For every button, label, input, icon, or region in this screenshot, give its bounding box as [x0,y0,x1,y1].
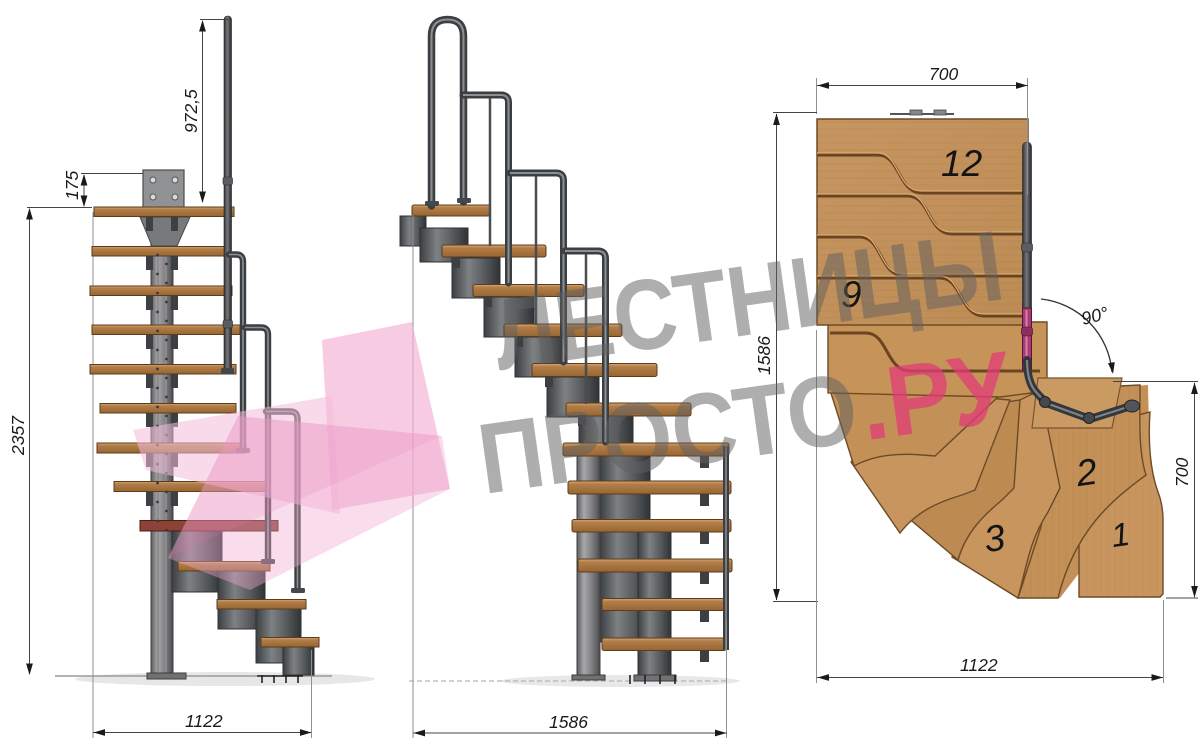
svg-text:1122: 1122 [960,655,998,675]
svg-text:.РУ: .РУ [853,330,1020,462]
svg-text:1586: 1586 [549,712,588,732]
svg-text:175: 175 [62,171,82,200]
svg-text:972,5: 972,5 [181,89,201,133]
svg-text:12: 12 [941,143,983,184]
svg-text:700: 700 [929,64,958,84]
svg-text:700: 700 [1172,458,1192,487]
svg-text:2357: 2357 [8,415,28,456]
svg-text:1122: 1122 [185,711,223,731]
